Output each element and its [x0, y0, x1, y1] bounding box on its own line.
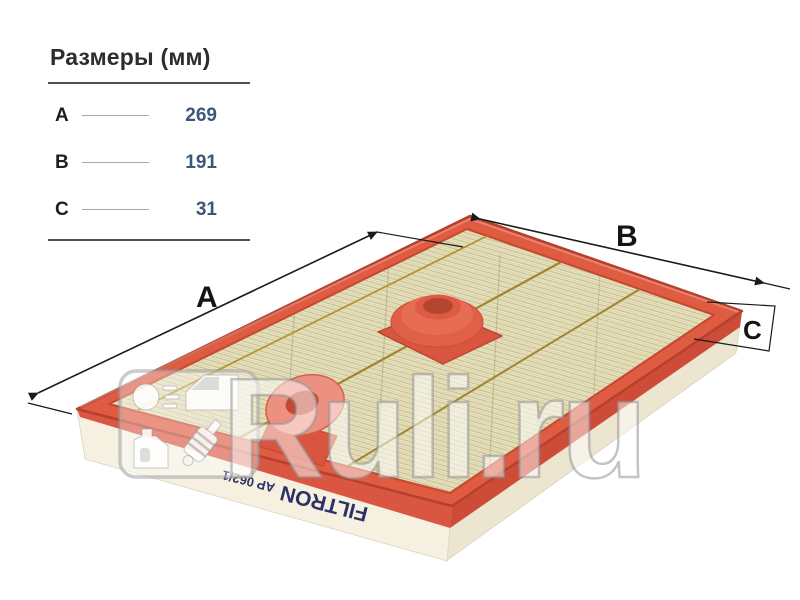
dimension-label-a: A: [196, 281, 218, 314]
dome-crater: [423, 298, 453, 314]
extension-line-a-low: [28, 403, 72, 414]
extension-line-b: [764, 283, 790, 289]
dimension-label-b: B: [616, 220, 638, 253]
air-filter-photo: FILTRONAP 062/1: [0, 0, 800, 600]
product-card-image: Размеры (мм) A 269 B 191 C 31: [0, 0, 800, 600]
watermark-text: Ruli.ru: [222, 349, 644, 508]
dimension-label-c: C: [743, 315, 762, 345]
